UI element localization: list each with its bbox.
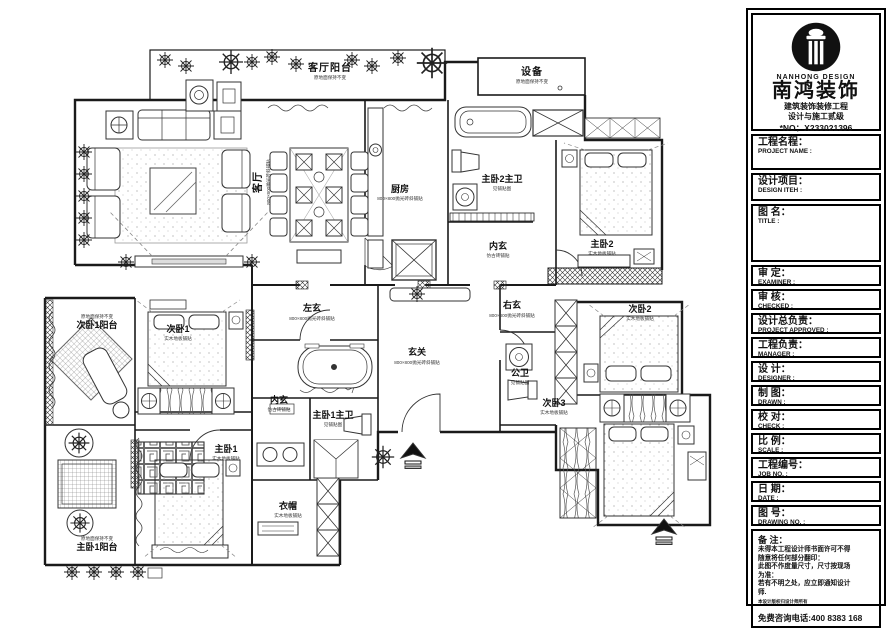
field-examiner: 审 定： EXAMINER : (751, 265, 881, 286)
room-note: 见铺贴图 (324, 421, 343, 428)
field-job-no: 工程编号： JOB NO. : (751, 457, 881, 478)
title-block: NANHONG DESIGN 南鸿装饰 建筑装饰装修工程 设计与施工贰级 *NO… (746, 8, 886, 606)
room-label: 次卧3 (542, 397, 565, 408)
dining-set (270, 148, 368, 263)
remarks-label: 备 注： (758, 533, 874, 546)
room-note: 800×800抛光砖斜铺贴 (394, 359, 440, 366)
equipment-area (558, 86, 562, 90)
room-note: 实木地板铺贴 (588, 250, 616, 257)
entry-hall (372, 286, 470, 469)
room-label: 设备 (521, 65, 543, 78)
room-label: 衣帽 (279, 500, 297, 511)
balcony-plants (157, 48, 447, 78)
room-label: 主卧1 (214, 443, 237, 454)
room-note: 原地面保持不变 (516, 78, 549, 85)
room-note: 800×800抛光砖斜铺贴 (377, 195, 423, 202)
room-label: 公卫 (511, 368, 529, 378)
room-label: 主卧1主卫 (312, 409, 353, 420)
room-note: 800×800抛光砖斜铺贴 (489, 312, 535, 319)
field-design-item: 设计项目： DESIGN ITEH : (751, 173, 881, 201)
room-label: 次卧1 (166, 323, 189, 334)
room-note: 原地面保持不变 (81, 535, 114, 542)
room-note: 原地面保持不变 (81, 313, 114, 320)
room-label: 内玄 (270, 394, 288, 405)
remarks-fine-print: 本设计版权归设计师所有 (758, 599, 874, 605)
room-label: 次卧1阳台 (76, 319, 117, 330)
room-note: 仿古砖铺贴 (268, 406, 291, 413)
room-note: 实木地板铺贴 (626, 315, 654, 322)
cert-line1: 建筑装饰装修工程 (758, 102, 874, 112)
field-check: 校 对： CHECK : (751, 409, 881, 430)
field-checked: 审 核： CHECKED : (751, 289, 881, 310)
room-label: 客厅 (251, 171, 264, 194)
room-note: 见铺贴图 (511, 379, 530, 386)
hotline-phone: 免费咨询电话:400 8383 168 (758, 612, 874, 624)
cert-line2: 设计与施工贰级 (758, 112, 874, 122)
brand-header: NANHONG DESIGN 南鸿装饰 建筑装饰装修工程 设计与施工贰级 *NO… (751, 13, 881, 131)
nanhong-logo-icon (790, 21, 842, 73)
cert-number: *NO：X233021396 (758, 122, 874, 134)
room-note: 800×800抛光砖斜铺贴 (265, 159, 272, 205)
room-label: 主卧2 (590, 238, 613, 249)
field-manager: 工程负责： MANAGER : (751, 337, 881, 358)
bedroom2 (584, 304, 690, 422)
room-label: 主卧2主卫 (481, 173, 522, 184)
room-note: 实木地板铺贴 (540, 409, 568, 416)
room-label: 厨房 (391, 183, 409, 194)
field-drawn: 制 图： DRAWN : (751, 385, 881, 406)
field-scale: 比 例： SCALE : (751, 433, 881, 454)
washing-machines (186, 80, 241, 111)
field-title: 图 名： TITLE : (751, 204, 881, 262)
room-note: 实木地板铺贴 (212, 455, 240, 462)
blueprint-page: 客厅阳台 原地面保持不变 设备 原地面保持不变 客厅 800×800抛光砖斜铺贴… (0, 0, 895, 633)
brand-name-cn: 南鸿装饰 (758, 81, 874, 102)
room-note: 实木地板铺贴 (274, 512, 302, 519)
room-note: 见铺贴图 (493, 185, 512, 192)
room-note: 800×800抛光砖斜铺贴 (289, 315, 335, 322)
bedroom3 (560, 424, 706, 545)
room-label: 内玄 (489, 240, 507, 251)
room-label: 玄关 (408, 346, 426, 357)
remarks-block: 备 注： 未得本工程设计师书面许可不得 随意将任何部分翻印： 此图不作度量尺寸，… (751, 529, 881, 628)
room-note: 仿古砖铺贴 (487, 252, 510, 259)
bedroom1 (136, 300, 243, 414)
master1-bathtub (298, 344, 372, 388)
field-project-approved: 设计总负责： PROJECT APPROVED : (751, 313, 881, 334)
room-label: 主卧1阳台 (76, 541, 117, 552)
field-date: 日 期： DATE : (751, 481, 881, 502)
field-designer: 设 计： DESIGNER : (751, 361, 881, 382)
room-label: 左玄 (302, 302, 321, 313)
living-room-sofa-set (87, 110, 250, 243)
room-label: 次卧2 (628, 303, 651, 314)
floor-plan: 客厅阳台 原地面保持不变 设备 原地面保持不变 客厅 800×800抛光砖斜铺贴… (0, 0, 746, 633)
field-drawing-no: 图 号： DRAWING NO. : (751, 505, 881, 526)
room-label: 客厅阳台 (307, 61, 352, 74)
room-note: 实木地板铺贴 (164, 335, 192, 342)
kitchen-counter (368, 108, 436, 280)
field-project-name: 工程名程： PROJECT NAME : (751, 134, 881, 170)
room-label: 右玄 (502, 299, 521, 310)
room-note: 原地面保持不变 (314, 74, 347, 81)
